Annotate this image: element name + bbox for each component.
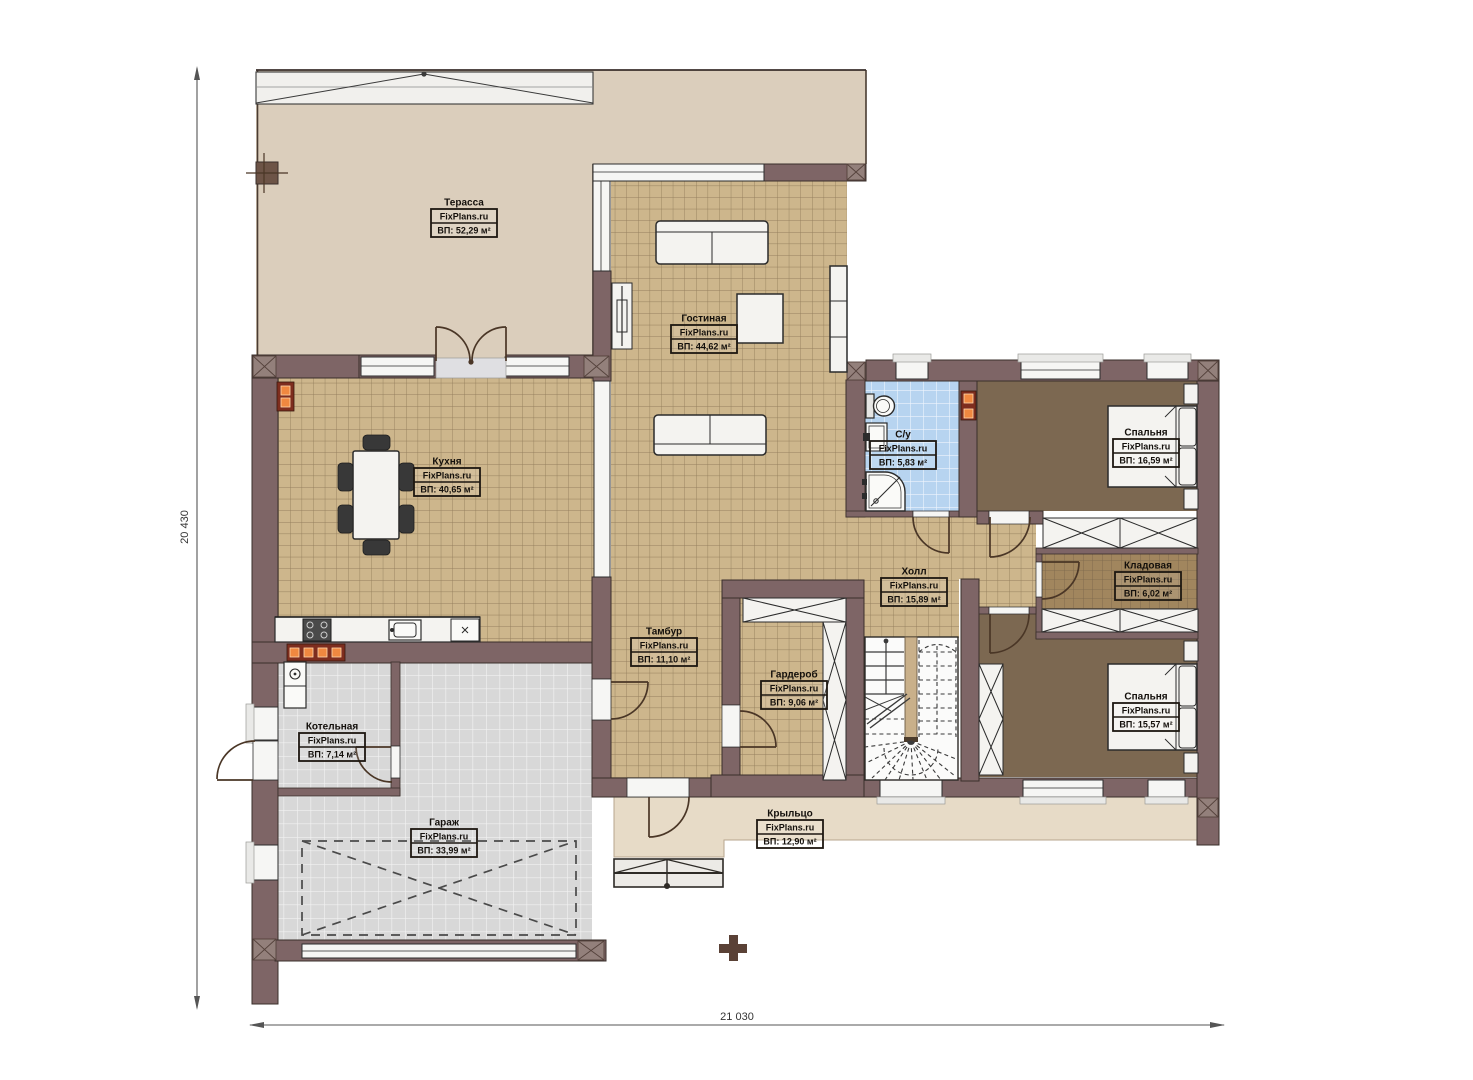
svg-text:FixPlans.ru: FixPlans.ru <box>308 736 357 746</box>
svg-text:Холл: Холл <box>901 567 926 578</box>
svg-text:FixPlans.ru: FixPlans.ru <box>766 823 815 833</box>
svg-text:Крыльцо: Крыльцо <box>767 809 813 820</box>
svg-text:ВП: 11,10 м²: ВП: 11,10 м² <box>638 655 691 665</box>
svg-text:Котельная: Котельная <box>306 722 359 733</box>
svg-text:Терасса: Терасса <box>444 198 484 209</box>
svg-text:ВП: 16,59 м²: ВП: 16,59 м² <box>1119 456 1172 466</box>
svg-text:ВП: 6,02 м²: ВП: 6,02 м² <box>1124 589 1172 599</box>
svg-text:FixPlans.ru: FixPlans.ru <box>440 212 489 222</box>
svg-text:FixPlans.ru: FixPlans.ru <box>1124 575 1173 585</box>
svg-text:FixPlans.ru: FixPlans.ru <box>879 444 928 454</box>
svg-text:С/у: С/у <box>895 430 911 441</box>
svg-text:ВП: 33,99 м²: ВП: 33,99 м² <box>417 846 470 856</box>
svg-text:ВП: 5,83 м²: ВП: 5,83 м² <box>879 458 927 468</box>
svg-text:FixPlans.ru: FixPlans.ru <box>423 471 472 481</box>
svg-text:Гараж: Гараж <box>429 818 460 829</box>
svg-text:ВП: 52,29 м²: ВП: 52,29 м² <box>437 226 490 236</box>
svg-text:Гостиная: Гостиная <box>681 314 726 325</box>
svg-text:Кухня: Кухня <box>432 457 461 468</box>
svg-text:FixPlans.ru: FixPlans.ru <box>420 832 469 842</box>
svg-text:21 030: 21 030 <box>720 1011 754 1023</box>
svg-text:FixPlans.ru: FixPlans.ru <box>1122 706 1171 716</box>
svg-text:FixPlans.ru: FixPlans.ru <box>1122 442 1171 452</box>
svg-text:ВП: 15,57 м²: ВП: 15,57 м² <box>1119 720 1172 730</box>
svg-text:ВП: 44,62 м²: ВП: 44,62 м² <box>677 342 730 352</box>
svg-text:ВП: 40,65 м²: ВП: 40,65 м² <box>420 485 473 495</box>
svg-text:ВП: 7,14 м²: ВП: 7,14 м² <box>308 750 356 760</box>
svg-text:FixPlans.ru: FixPlans.ru <box>890 581 939 591</box>
svg-text:FixPlans.ru: FixPlans.ru <box>680 328 729 338</box>
svg-text:20 430: 20 430 <box>179 510 191 544</box>
svg-text:Спальня: Спальня <box>1124 428 1167 439</box>
svg-text:ВП: 15,89 м²: ВП: 15,89 м² <box>887 595 940 605</box>
svg-text:ВП: 9,06 м²: ВП: 9,06 м² <box>770 698 818 708</box>
svg-text:Кладовая: Кладовая <box>1124 561 1172 572</box>
svg-text:Тамбур: Тамбур <box>646 626 682 638</box>
svg-text:FixPlans.ru: FixPlans.ru <box>770 684 819 694</box>
svg-text:Гардероб: Гардероб <box>770 669 817 681</box>
svg-text:FixPlans.ru: FixPlans.ru <box>640 641 689 651</box>
svg-text:Спальня: Спальня <box>1124 692 1167 703</box>
svg-text:ВП: 12,90 м²: ВП: 12,90 м² <box>763 837 816 847</box>
